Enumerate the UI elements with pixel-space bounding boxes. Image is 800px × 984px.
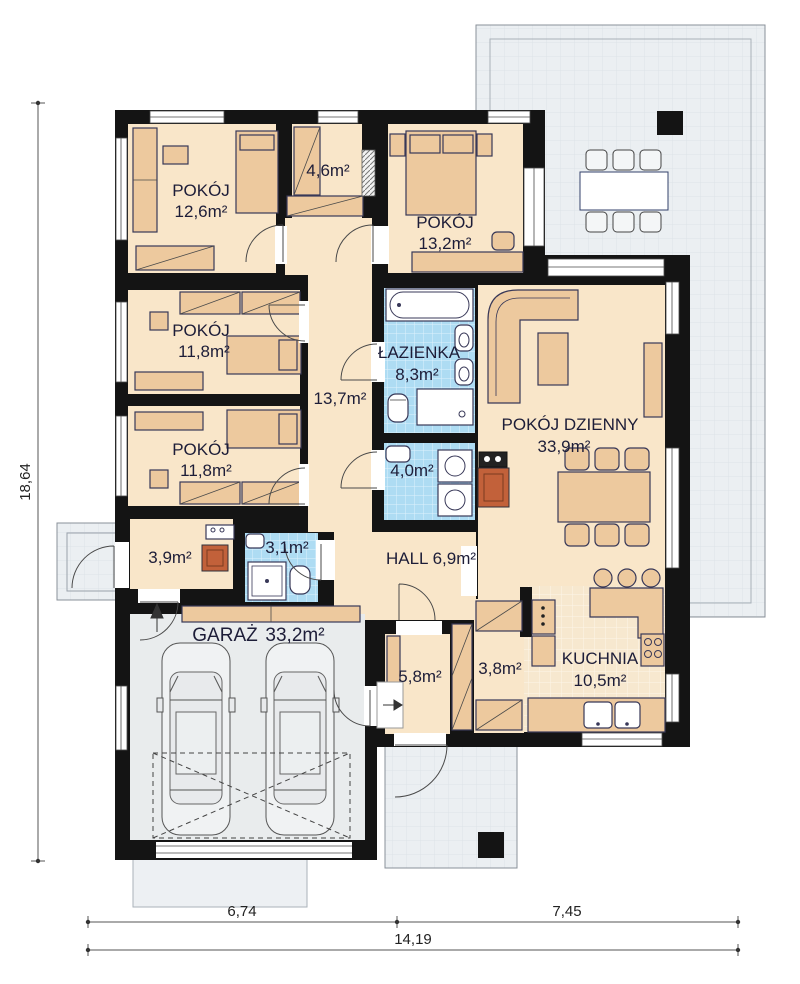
dim-height-total: 18,64 xyxy=(17,463,34,501)
window xyxy=(582,733,662,746)
label-living-name: POKÓJ DZIENNY xyxy=(502,415,639,434)
nightstand xyxy=(390,134,405,156)
cabinet xyxy=(532,636,555,666)
label-bedroom4-area: 11,8m² xyxy=(180,461,232,480)
desk xyxy=(163,146,188,164)
entry-porch-column xyxy=(478,832,504,858)
chair xyxy=(492,232,514,250)
chair xyxy=(595,524,619,546)
label-bedroom2-name: POKÓJ xyxy=(416,213,474,232)
washing-machine xyxy=(438,450,472,482)
shelf xyxy=(135,372,203,390)
label-bedroom4-name: POKÓJ xyxy=(172,440,230,459)
terrace-chair xyxy=(586,150,607,170)
label-closet-area: 4,6m² xyxy=(306,161,350,180)
window xyxy=(116,138,127,240)
label-corridor-area: 13,7m² xyxy=(314,389,367,408)
side-porch xyxy=(57,523,117,600)
terrace-chair xyxy=(640,150,661,170)
label-pantry-area: 3,8m² xyxy=(478,659,522,678)
label-vestibule-area: 5,8m² xyxy=(398,667,442,686)
floor-plan-page: POKÓJ 12,6m² 4,6m² POKÓJ 13,2m² POKÓJ 11… xyxy=(0,0,800,984)
boiler xyxy=(202,545,228,571)
terrace-door-window xyxy=(524,168,544,246)
pillow xyxy=(240,135,274,150)
terrace-chair xyxy=(640,212,661,232)
label-bedroom1-name: POKÓJ xyxy=(172,181,230,200)
terrace-chair xyxy=(586,212,607,232)
pillow xyxy=(279,340,297,370)
dining-table xyxy=(558,472,650,522)
window xyxy=(150,111,224,123)
pillow xyxy=(279,414,297,444)
label-hall: HALL 6,9m² xyxy=(386,549,476,568)
terrace-column xyxy=(657,111,683,135)
small-table xyxy=(150,470,168,488)
car-mirror xyxy=(261,698,267,712)
car xyxy=(261,643,339,835)
label-wc-area: 3,1m² xyxy=(265,538,309,557)
sink xyxy=(386,446,410,462)
floor-plan-svg: POKÓJ 12,6m² 4,6m² POKÓJ 13,2m² POKÓJ 11… xyxy=(0,0,800,984)
window xyxy=(488,111,530,123)
car xyxy=(157,643,235,835)
terrace-table xyxy=(580,172,668,210)
coffee-table xyxy=(538,333,568,385)
label-bedroom3-name: POKÓJ xyxy=(172,321,230,340)
terrace-slider-window xyxy=(548,259,664,276)
chair xyxy=(565,524,589,546)
label-kitchen-name: KUCHNIA xyxy=(562,649,639,668)
car-mirror xyxy=(229,698,235,712)
window xyxy=(666,282,679,334)
toilet xyxy=(290,566,310,594)
wardrobe xyxy=(452,624,472,730)
window xyxy=(666,674,679,722)
pillow xyxy=(443,135,473,153)
label-bedroom3-area: 11,8m² xyxy=(178,342,230,361)
label-bedroom2-area: 13,2m² xyxy=(419,234,472,253)
bar-stool xyxy=(618,569,636,587)
pillow xyxy=(410,135,440,153)
dimension-bottom: 6,74 7,45 14,19 xyxy=(86,903,740,956)
chair xyxy=(625,448,649,470)
label-bedroom1-area: 12,6m² xyxy=(175,202,228,221)
bar-stool xyxy=(594,569,612,587)
bar-stool xyxy=(642,569,660,587)
terrace-chair xyxy=(613,150,634,170)
label-garage-area: 33,2m² xyxy=(265,625,324,646)
driveway-apron xyxy=(133,857,307,907)
car-mirror xyxy=(157,698,163,712)
label-living-area: 33,9m² xyxy=(538,437,591,456)
nightstand xyxy=(477,134,492,156)
stove-top xyxy=(479,452,507,467)
label-utility-area: 3,9m² xyxy=(148,548,192,567)
dim-bottom-left: 6,74 xyxy=(227,903,256,920)
window xyxy=(116,686,127,750)
window xyxy=(666,448,679,568)
tv-cabinet xyxy=(644,343,662,417)
cooktop xyxy=(641,634,664,666)
dim-bottom-total: 14,19 xyxy=(394,931,432,948)
terrace-chair xyxy=(613,212,634,232)
toilet xyxy=(388,394,408,422)
chimney-hatch xyxy=(362,150,375,196)
chair xyxy=(625,524,649,546)
desk xyxy=(412,252,523,272)
window xyxy=(116,416,127,496)
shelf xyxy=(135,412,203,430)
garage-door-opening xyxy=(156,842,352,858)
window xyxy=(318,111,358,123)
car-roof xyxy=(176,712,216,774)
label-garage-name: GARAŻ xyxy=(192,625,258,646)
corridor-top-floor xyxy=(285,218,372,275)
small-table xyxy=(150,312,168,330)
window xyxy=(116,302,127,382)
washbasin-counter xyxy=(417,389,473,425)
chair xyxy=(595,448,619,470)
label-bathroom-name: ŁAZIENKA xyxy=(378,343,461,362)
dim-bottom-right: 7,45 xyxy=(552,903,581,920)
appliance xyxy=(206,525,234,539)
car-roof xyxy=(280,712,320,774)
sink xyxy=(246,534,264,548)
label-kitchen-area: 10,5m² xyxy=(574,671,627,690)
label-bathroom-area: 8,3m² xyxy=(395,365,439,384)
dryer xyxy=(438,484,472,516)
terrace-dining-set xyxy=(580,150,668,232)
car-mirror xyxy=(333,698,339,712)
label-laundry-area: 4,0m² xyxy=(390,461,434,480)
dimension-left: 18,64 xyxy=(17,101,45,863)
